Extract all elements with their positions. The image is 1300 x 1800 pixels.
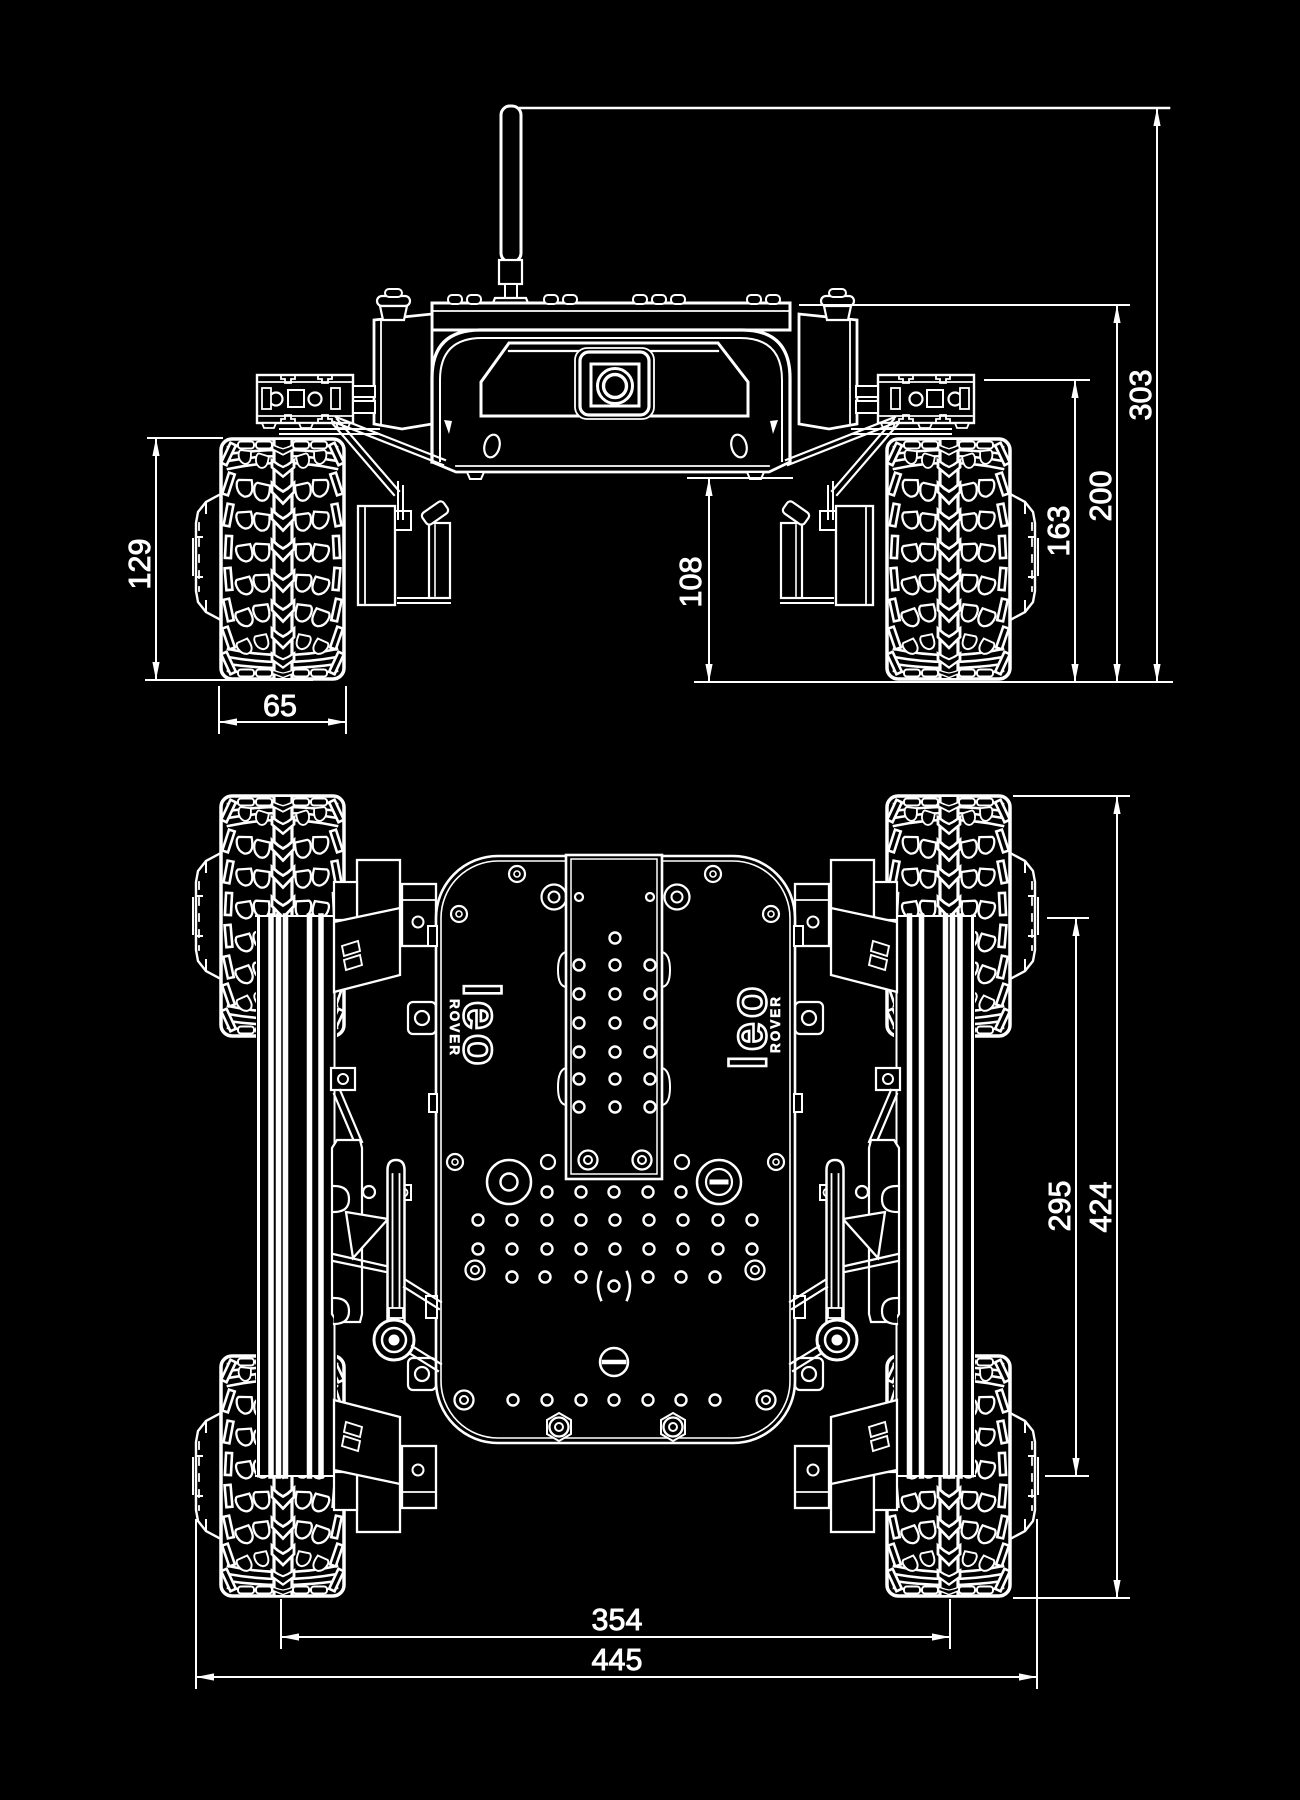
svg-text:354: 354 [592, 1603, 643, 1637]
svg-text:295: 295 [1043, 1181, 1077, 1232]
svg-text:163: 163 [1042, 506, 1076, 557]
svg-text:303: 303 [1124, 370, 1158, 421]
svg-text:108: 108 [674, 557, 708, 608]
svg-text:200: 200 [1084, 471, 1118, 522]
svg-text:445: 445 [592, 1643, 643, 1677]
svg-text:424: 424 [1084, 1182, 1118, 1233]
svg-text:65: 65 [263, 689, 297, 723]
svg-text:129: 129 [123, 539, 157, 590]
